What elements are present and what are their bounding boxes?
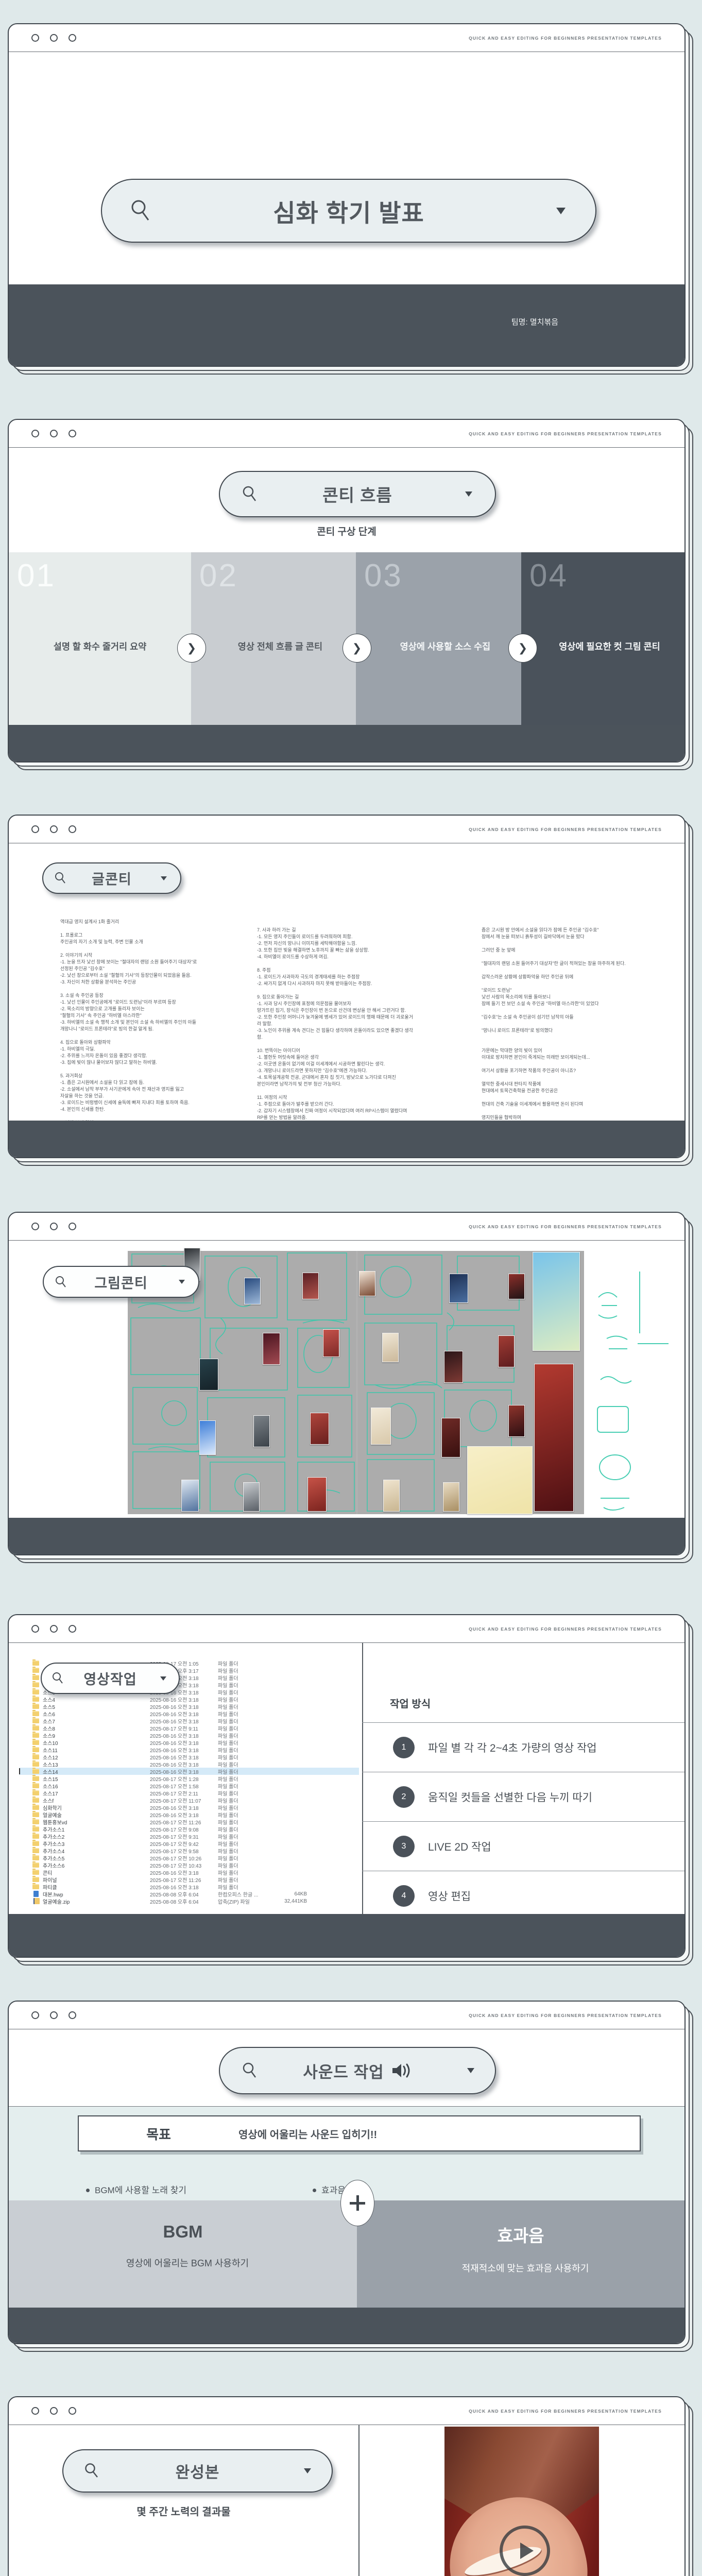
storyboard-thumbnail xyxy=(534,1364,574,1512)
file-type: 파일 폴더 xyxy=(218,1876,279,1884)
window-dots[interactable] xyxy=(31,34,76,42)
window-dot-icon[interactable] xyxy=(31,1625,39,1633)
work-step-number: 1 xyxy=(393,1737,415,1758)
file-row[interactable]: 추가소스52025-08-17 오전 10:26파일 폴더 xyxy=(19,1854,359,1861)
folder-icon xyxy=(32,1733,39,1738)
file-name: 추가소스2 xyxy=(43,1833,150,1840)
storyboard-thumbnail xyxy=(302,1273,319,1299)
file-name: 소스9 xyxy=(43,1732,150,1739)
storyboard-thumbnail xyxy=(508,1405,525,1437)
file-date: 2025-08-16 오전 3:18 xyxy=(150,1869,218,1876)
file-type: 파일 폴더 xyxy=(218,1825,279,1833)
file-date: 2025-08-16 오전 3:18 xyxy=(150,1717,218,1725)
folder-icon xyxy=(32,1790,39,1795)
storyline-line xyxy=(257,1041,413,1047)
title-search-bar[interactable]: 그림콘티 xyxy=(43,1266,199,1298)
file-type: 압축(ZIP) 파일 xyxy=(218,1897,279,1905)
window-dot-icon[interactable] xyxy=(69,1625,76,1633)
work-method-heading: 작업 방식 xyxy=(390,1696,431,1710)
window-dot-icon[interactable] xyxy=(50,2011,58,2019)
storyboard-thumbnail xyxy=(199,1420,216,1455)
window-dot-icon[interactable] xyxy=(50,825,58,833)
file-name: 소스5 xyxy=(43,1703,150,1710)
file-date: 2025-08-08 오후 6:04 xyxy=(150,1890,218,1898)
file-row[interactable]: 웹툰홍보vd2025-08-17 오전 11:26파일 폴더 xyxy=(19,1818,359,1825)
window-dots[interactable] xyxy=(31,2011,76,2019)
folder-icon xyxy=(32,1711,39,1716)
storyline-line: 잠에 들기 전 보던 소설 속 주인공 "하비엘 아스라한"이 있었다 xyxy=(482,1001,626,1007)
slide-5-title-text: 영상작업 xyxy=(83,1668,136,1688)
file-type: 파일 폴더 xyxy=(218,1696,279,1703)
storyline-line: -4. 본인의 신세를 한탄. xyxy=(60,1106,197,1113)
storyline-line: 1. 프롤로그 xyxy=(60,932,197,939)
title-search-bar[interactable]: 심화 학기 발표 xyxy=(101,179,596,243)
template-header-text: QUICK AND EASY EDITING FOR BEGINNERS PRE… xyxy=(469,827,662,832)
title-search-bar[interactable]: 사운드 작업 xyxy=(219,2047,496,2094)
work-step-number: 3 xyxy=(393,1836,415,1857)
window-dot-icon[interactable] xyxy=(31,825,39,833)
chevron-right-icon: ❯ xyxy=(343,634,371,663)
search-icon xyxy=(129,198,151,223)
slide-1-title-text: 심화 학기 발표 xyxy=(273,193,424,229)
file-row[interactable]: 소스92025-08-16 오전 3:18파일 폴더 xyxy=(19,1732,359,1739)
file-date: 2025-08-16 오전 3:18 xyxy=(150,1753,218,1761)
storyboard-thumbnail xyxy=(263,1333,280,1365)
storyline-line: "절대자의 랜덤 소원 들어주기 대상자"란 글이 적혀있는 창을 마주하게 된… xyxy=(482,960,626,967)
sfx-column: 효과음 적재적소에 맞는 효과음 사용하기 xyxy=(357,2200,684,2308)
file-type: 파일 폴더 xyxy=(218,1717,279,1725)
storyline-line xyxy=(257,987,413,994)
file-type: 파일 폴더 xyxy=(218,1869,279,1876)
window-dot-icon[interactable] xyxy=(50,34,58,42)
storyboard-thumbnail xyxy=(244,1278,261,1304)
storyline-line: -2. 갑자기 시스템창에서 진짜 여정이 시작되었다며 여러 RP시스템이 열… xyxy=(257,1108,413,1114)
goal-text: 영상에 어울리는 사운드 입히기!! xyxy=(238,2126,377,2141)
storyline-line: -2. 소설에서 남작 부부가 사기꾼에게 속아 전 재산과 영지를 잃고 xyxy=(60,1086,197,1093)
storyboard-thumbnail xyxy=(371,1408,391,1445)
file-name: 소스6 xyxy=(43,1710,150,1718)
file-type: 파일 폴더 xyxy=(218,1782,279,1790)
window-dot-icon[interactable] xyxy=(31,34,39,42)
storyline-line: -3. 또한 집안 빚을 해결하면 노후까지 꿀 빠는 삶을 상상함. xyxy=(257,947,413,954)
window-dots[interactable] xyxy=(31,825,76,833)
browser-window-7: QUICK AND EASY EDITING FOR BEGINNERS PRE… xyxy=(8,2396,686,2576)
search-icon xyxy=(242,485,257,503)
file-name: 얼굴예술.zip xyxy=(43,1897,150,1905)
folder-icon xyxy=(32,1704,39,1709)
chevron-down-icon[interactable] xyxy=(467,2068,474,2073)
work-step-text: 움직일 컷들을 선별한 다음 누끼 따기 xyxy=(428,1789,592,1805)
file-name: 소스10 xyxy=(43,1739,150,1747)
folder-icon xyxy=(32,1689,39,1694)
browser-window-6: QUICK AND EASY EDITING FOR BEGINNERS PRE… xyxy=(8,2001,686,2344)
storyline-line: 현대에서 토목건축학을 전공한 주인공은 xyxy=(482,1088,626,1094)
title-search-bar[interactable]: 글콘티 xyxy=(42,862,181,894)
file-date: 2025-08-17 오전 11:07 xyxy=(150,1797,218,1804)
storyline-col3: 좁은 고시원 방 안에서 소설을 읽다가 잠에 든 주인공 "김수호"잠에서 깨… xyxy=(482,927,626,1141)
file-row[interactable]: 소스142025-08-16 오전 3:18파일 폴더 xyxy=(19,1768,359,1775)
storyline-line: -1. 사과 당시 주인장에 표정에 의문점을 물어보자 xyxy=(257,1001,413,1007)
window-dot-icon[interactable] xyxy=(50,430,58,437)
storyline-line xyxy=(482,954,626,960)
flow-step-number: 01 xyxy=(9,552,191,594)
file-row[interactable]: 심화학기2025-08-16 오전 3:18파일 폴더 xyxy=(19,1804,359,1811)
folder-icon xyxy=(32,1783,39,1788)
window-dots[interactable] xyxy=(31,2407,76,2415)
file-type: 파일 폴더 xyxy=(218,1760,279,1768)
slide-4-footer xyxy=(9,1518,684,1554)
storyline-line xyxy=(482,1108,626,1114)
file-row[interactable]: 추가소스32025-08-17 오전 9:42파일 폴더 xyxy=(19,1840,359,1847)
file-type: 파일 폴더 xyxy=(218,1883,279,1891)
storyline-line: "로이드 도련님" xyxy=(482,987,626,994)
file-row[interactable]: 추가소스62025-08-17 오전 10:43파일 폴더 xyxy=(19,1861,359,1869)
file-date: 2025-08-16 오전 3:18 xyxy=(150,1768,218,1775)
flow-step-label: 영상 전체 흐름 글 콘티 xyxy=(191,640,356,653)
storyboard-thumbnail xyxy=(382,1333,399,1362)
window-titlebar: QUICK AND EASY EDITING FOR BEGINNERS PRE… xyxy=(9,1213,684,1241)
template-header-text: QUICK AND EASY EDITING FOR BEGINNERS PRE… xyxy=(469,36,662,41)
browser-window-4: QUICK AND EASY EDITING FOR BEGINNERS PRE… xyxy=(8,1212,686,1555)
template-header-text: QUICK AND EASY EDITING FOR BEGINNERS PRE… xyxy=(469,2013,662,2018)
storyboard-thumbnail xyxy=(467,1446,533,1514)
work-step-text: 파일 별 각 각 2~4초 가량의 영상 작업 xyxy=(428,1740,597,1755)
chevron-down-icon[interactable] xyxy=(465,492,472,497)
file-type: 파일 폴더 xyxy=(218,1840,279,1848)
window-dot-icon[interactable] xyxy=(50,1625,58,1633)
file-name: 심화학기 xyxy=(43,1804,150,1811)
file-name: 소스f xyxy=(43,1797,150,1804)
file-row[interactable]: 얼굴예술2025-08-16 오전 3:18파일 폴더 xyxy=(19,1811,359,1818)
file-name: 파이널 xyxy=(43,1876,150,1884)
storyline-line xyxy=(482,1094,626,1101)
storyline-line xyxy=(60,1066,197,1073)
chevron-right-icon: ❯ xyxy=(177,634,206,663)
folder-icon xyxy=(32,1668,39,1673)
folder-icon xyxy=(32,1862,39,1868)
browser-window-5: QUICK AND EASY EDITING FOR BEGINNERS PRE… xyxy=(8,1614,686,1958)
slide-3-title-text: 글콘티 xyxy=(92,868,132,888)
flow-step-04: 04영상에 필요한 컷 그림 콘티 xyxy=(521,552,684,727)
file-date: 2025-08-16 오전 3:18 xyxy=(150,1696,218,1703)
window-dot-icon[interactable] xyxy=(50,2407,58,2415)
file-name: 소스11 xyxy=(43,1746,150,1754)
goal-box: 목표 영상에 어울리는 사운드 입히기!! xyxy=(78,2115,641,2151)
slide-2-flow: QUICK AND EASY EDITING FOR BEGINNERS PRE… xyxy=(8,419,686,762)
file-row[interactable]: 추가소스22025-08-17 오전 9:31파일 폴더 xyxy=(19,1833,359,1840)
folder-icon xyxy=(32,1819,39,1824)
window-dot-icon[interactable] xyxy=(69,430,76,437)
storyline-line: -1. 좁은 고시원에서 소설을 다 읽고 잠에 듬. xyxy=(60,1079,197,1086)
folder-icon xyxy=(32,1870,39,1875)
slide-1-footer: 팀명: 멸치볶음 xyxy=(9,284,684,366)
file-row[interactable]: 소스f2025-08-17 오전 11:07파일 폴더 xyxy=(19,1797,359,1804)
file-row[interactable]: 추가소스42025-08-17 오전 9:58파일 폴더 xyxy=(19,1847,359,1854)
window-dot-icon[interactable] xyxy=(69,2407,76,2415)
storyline-line xyxy=(60,945,197,952)
file-row[interactable]: 추가소스12025-08-17 오전 9:08파일 폴더 xyxy=(19,1825,359,1833)
storyline-line: -4. 토목설계공학 전공, 군대에서 혼자 집 짓기, 밤낮으로 노가다로 다… xyxy=(257,1074,413,1081)
flow-step-label: 설명 할 화수 줄거리 요약 xyxy=(9,640,191,653)
file-row[interactable]: 소스62025-08-16 오전 3:18파일 폴더 xyxy=(19,1710,359,1717)
browser-window-2: QUICK AND EASY EDITING FOR BEGINNERS PRE… xyxy=(8,419,686,762)
file-date: 2025-08-16 오전 3:18 xyxy=(150,1703,218,1710)
storyboard-thumbnail xyxy=(508,1274,525,1299)
browser-window-3: QUICK AND EASY EDITING FOR BEGINNERS PRE… xyxy=(8,815,686,1158)
file-date: 2025-08-17 오전 9:11 xyxy=(150,1724,218,1732)
file-date: 2025-08-16 오전 3:18 xyxy=(150,1804,218,1811)
file-type: 파일 폴더 xyxy=(218,1789,279,1797)
storyboard-thumbnail xyxy=(359,1271,375,1296)
storyline-line: -1. 눈을 뜨자 낯선 창에 보이는 "절대자의 랜덤 소원 들어주기 대상자… xyxy=(60,959,197,965)
file-row[interactable]: 파이널2025-08-17 오전 11:26파일 폴더 xyxy=(19,1876,359,1883)
slide-7-subtitle: 몇 주간 노력의 결과물 xyxy=(9,2503,358,2518)
window-dot-icon[interactable] xyxy=(69,1223,76,1230)
file-type: 파일 폴더 xyxy=(218,1681,279,1689)
window-dot-icon[interactable] xyxy=(69,825,76,833)
storyboard-thumbnail xyxy=(310,1413,329,1445)
file-type: 파일 폴더 xyxy=(218,1768,279,1775)
slide-7-title-text: 완성본 xyxy=(176,2460,220,2482)
storyline-line xyxy=(257,960,413,967)
file-row[interactable]: 소스122025-08-16 오전 3:18파일 폴더 xyxy=(19,1753,359,1760)
slide-4-storyboard: QUICK AND EASY EDITING FOR BEGINNERS PRE… xyxy=(8,1212,686,1555)
hwp-icon xyxy=(33,1891,39,1897)
file-type: 파일 폴더 xyxy=(218,1804,279,1811)
file-type: 파일 폴더 xyxy=(218,1703,279,1710)
folder-icon xyxy=(32,1718,39,1723)
folder-icon xyxy=(32,1805,39,1810)
storyline-line xyxy=(482,940,626,947)
search-icon xyxy=(84,2463,98,2479)
flow-step-label: 영상에 필요한 컷 그림 콘티 xyxy=(521,640,684,653)
storyline-line: -3. 집에 빚이 많냐 물어보자 많다고 말하는 하비엘. xyxy=(60,1059,197,1066)
title-search-bar[interactable]: 콘티 흐름 xyxy=(219,471,496,517)
window-dot-icon[interactable] xyxy=(31,1223,39,1230)
browser-window-1: QUICK AND EASY EDITING FOR BEGINNERS PRE… xyxy=(8,23,686,367)
storyboard-thumbnail xyxy=(243,1482,260,1512)
window-dot-icon[interactable] xyxy=(31,2011,39,2019)
search-icon xyxy=(242,2062,257,2079)
file-type: 파일 폴더 xyxy=(218,1811,279,1819)
file-row[interactable]: 소스72025-08-16 오전 3:18파일 폴더 xyxy=(19,1717,359,1724)
final-video-thumbnail[interactable]: 날름... xyxy=(444,2427,599,2576)
file-date: 2025-08-16 오전 3:18 xyxy=(150,1739,218,1747)
folder-icon xyxy=(32,1841,39,1846)
flow-step-03: 03영상에 사용할 소스 수집 xyxy=(356,552,521,727)
storyline-line xyxy=(482,1061,626,1067)
slide-5-video-work: QUICK AND EASY EDITING FOR BEGINNERS PRE… xyxy=(8,1614,686,1958)
storyline-line: 5. 과거회상 xyxy=(60,1073,197,1079)
search-icon xyxy=(55,872,66,885)
flow-step-02: 02영상 전체 흐름 글 콘티 xyxy=(191,552,356,727)
slide-6-footer xyxy=(9,2308,684,2343)
panel-divider xyxy=(358,2425,359,2576)
storyline-line: 역대급 영지 설계사 1화 줄거리 xyxy=(60,919,197,925)
storyline-line xyxy=(60,925,197,932)
storyline-line: -3. 자신이 처한 상황을 분석하는 주인공 xyxy=(60,979,197,986)
storyline-line xyxy=(257,1088,413,1094)
title-search-bar[interactable]: 영상작업 xyxy=(41,1663,180,1694)
storyline-line: 본인이라면 남작가의 빚 전부 청산 가능하다. xyxy=(257,1081,413,1088)
file-type: 파일 폴더 xyxy=(218,1746,279,1754)
storyline-line xyxy=(482,1041,626,1047)
plus-icon[interactable] xyxy=(340,2180,374,2226)
file-row[interactable]: 소스102025-08-16 오전 3:18파일 폴더 xyxy=(19,1739,359,1746)
file-name: 소스16 xyxy=(43,1782,150,1790)
storyline-line: 여기서 상황을 포기하면 작품의 주인공이 아니죠? xyxy=(482,1067,626,1074)
storyline-line xyxy=(60,1113,197,1120)
file-type: 파일 폴더 xyxy=(218,1854,279,1862)
chevron-down-icon[interactable] xyxy=(161,876,167,880)
file-name: 소스14 xyxy=(43,1768,150,1775)
storyboard-thumbnail xyxy=(253,1415,270,1447)
folder-icon xyxy=(32,1675,39,1680)
bgm-column: BGM 영상에 어울리는 BGM 사용하기 xyxy=(9,2200,357,2308)
file-row[interactable]: 파티클2025-08-16 오전 3:18파일 폴더 xyxy=(19,1883,359,1890)
file-size: 32,441KB xyxy=(279,1899,307,1904)
file-type: 파일 폴더 xyxy=(218,1739,279,1747)
file-row[interactable]: 소스82025-08-17 오전 9:11파일 폴더 xyxy=(19,1724,359,1732)
file-row[interactable]: 대본.hwp2025-08-08 오후 6:04한컴오피스 한글 ...64KB xyxy=(19,1890,359,1897)
file-row[interactable]: 소스112025-08-16 오전 3:18파일 폴더 xyxy=(19,1746,359,1753)
slide-6-sound-work: QUICK AND EASY EDITING FOR BEGINNERS PRE… xyxy=(8,2001,686,2344)
file-row[interactable]: 소스152025-08-17 오전 1:28파일 폴더 xyxy=(19,1775,359,1782)
storyboard-thumbnail xyxy=(323,1329,339,1357)
folder-icon xyxy=(32,1754,39,1759)
file-row[interactable]: 소스172025-08-17 오전 2:11파일 폴더 xyxy=(19,1789,359,1797)
storyline-line: -2. 목소리의 방향으로 고개를 돌리자 보이는 xyxy=(60,1006,197,1012)
storyline-line: 8. 주점 xyxy=(257,967,413,974)
window-titlebar: QUICK AND EASY EDITING FOR BEGINNERS PRE… xyxy=(9,420,684,448)
search-icon xyxy=(52,1672,63,1685)
file-name: 추가소스6 xyxy=(43,1861,150,1869)
storyboard-thumbnail xyxy=(443,1482,459,1512)
window-dot-icon[interactable] xyxy=(31,430,39,437)
storyline-line: "망나니 로이드 프론테라"로 빙의했다 xyxy=(482,1027,626,1034)
chevron-right-icon: ❯ xyxy=(508,634,537,663)
storyline-line: 4. 집으로 돌아와 상황파악 xyxy=(60,1039,197,1046)
speaker-icon xyxy=(391,2062,412,2079)
storyline-line: 낯선 사람의 목소리에 뒤를 돌아보니 xyxy=(482,994,626,1001)
file-date: 2025-08-17 오전 9:08 xyxy=(150,1825,218,1833)
title-search-bar[interactable]: 완성본 xyxy=(62,2449,333,2493)
chevron-down-icon[interactable] xyxy=(160,1676,166,1681)
folder-icon xyxy=(32,1884,39,1889)
file-date: 2025-08-16 오전 3:18 xyxy=(150,1883,218,1891)
file-row[interactable]: 소스132025-08-16 오전 3:18파일 폴더 xyxy=(19,1760,359,1768)
storyline-line: -2. 먼저 자신의 망나니 이미지를 세탁해야함을 느낌. xyxy=(257,940,413,947)
chevron-down-icon[interactable] xyxy=(304,2468,311,2473)
storyline-line: -3. 하비엘의 소설 속 행적 소개 및 본인이 소설 속 하비엘의 주인의 … xyxy=(60,1019,197,1026)
template-header-text: QUICK AND EASY EDITING FOR BEGINNERS PRE… xyxy=(469,1224,662,1229)
folder-icon xyxy=(32,1834,39,1839)
slide-2-subtitle: 콘티 구상 단계 xyxy=(9,524,684,538)
window-dots[interactable] xyxy=(31,1223,76,1230)
work-step-number: 2 xyxy=(393,1786,415,1808)
slide-1-content: 심화 학기 발표 팀명: 멸치볶음 xyxy=(9,52,684,366)
file-date: 2025-08-16 오전 3:18 xyxy=(150,1746,218,1754)
storyline-line: 자살을 하는 것을 언급. xyxy=(60,1093,197,1099)
storyline-line: 라 말함. xyxy=(257,1021,413,1027)
slide-2-footer xyxy=(9,725,684,761)
storyline-line: 가문에는 막대한 양의 빚이 있어 xyxy=(482,1047,626,1054)
file-row[interactable]: 콘티2025-08-16 오전 3:18파일 폴더 xyxy=(19,1869,359,1876)
file-date: 2025-08-17 오전 10:43 xyxy=(150,1861,218,1869)
folder-icon xyxy=(32,1798,39,1803)
file-name: 파티클 xyxy=(43,1883,150,1891)
margin-handwriting xyxy=(588,1261,678,1529)
file-type: 파일 폴더 xyxy=(218,1797,279,1804)
flow-columns: 01설명 할 화수 줄거리 요약02영상 전체 흐름 글 콘티03영상에 사용할… xyxy=(9,552,684,727)
storyboard-thumbnail xyxy=(498,1335,515,1367)
file-date: 2025-08-16 오전 3:18 xyxy=(150,1811,218,1819)
slide-3-content: 글콘티 역대급 영지 설계사 1화 줄거리 1. 프롤로그주인공의 자기 소개 … xyxy=(9,843,684,1157)
file-date: 2025-08-17 오전 11:26 xyxy=(150,1818,218,1826)
file-type: 파일 폴더 xyxy=(218,1753,279,1761)
window-dot-icon[interactable] xyxy=(31,2407,39,2415)
storyline-col2: 7. 사과 하러 가는 길 -1. 모든 영지 주인들이 로이드를 두려워하며 … xyxy=(257,927,413,1121)
storyline-line: 선정된 주인공 "김수호" xyxy=(60,965,197,972)
file-row[interactable]: 소스52025-08-16 오전 3:18파일 폴더 xyxy=(19,1703,359,1710)
file-date: 2025-08-16 오전 3:18 xyxy=(150,1732,218,1739)
window-titlebar: QUICK AND EASY EDITING FOR BEGINNERS PRE… xyxy=(9,1615,684,1643)
storyline-line: -2. 이곳엔 온돌이 없기에 이걸 이세계에서 시공하면 팔린다는 생각. xyxy=(257,1061,413,1067)
window-dot-icon[interactable] xyxy=(50,1223,58,1230)
window-dot-icon[interactable] xyxy=(69,2011,76,2019)
storyline-line xyxy=(482,1021,626,1027)
storyline-line: 7. 사과 하러 가는 길 xyxy=(257,927,413,934)
file-type: 한컴오피스 한글 ... xyxy=(218,1890,279,1898)
slide-7-final-result: QUICK AND EASY EDITING FOR BEGINNERS PRE… xyxy=(8,2396,686,2576)
file-row[interactable]: 소스42025-08-16 오전 3:18파일 폴더 xyxy=(19,1696,359,1703)
slide-4-title-text: 그림콘티 xyxy=(94,1272,147,1292)
file-type: 파일 폴더 xyxy=(218,1674,279,1682)
storyline-line: 현대의 건축 기술을 이세계에서 활용하면 돈이 된다며 xyxy=(482,1101,626,1108)
file-type: 파일 폴더 xyxy=(218,1667,279,1674)
folder-icon xyxy=(32,1697,39,1702)
file-size: 64KB xyxy=(279,1891,307,1897)
storyboard-thumbnail xyxy=(441,1418,460,1458)
window-dots[interactable] xyxy=(31,430,76,437)
storyline-line: -1. 불현듯 머릿속에 들어온 생각 xyxy=(257,1054,413,1061)
work-step-text: LIVE 2D 작업 xyxy=(428,1839,491,1854)
folder-icon xyxy=(32,1877,39,1882)
file-date: 2025-08-16 오전 3:18 xyxy=(150,1760,218,1768)
file-row[interactable]: 소스162025-08-17 오전 1:58파일 폴더 xyxy=(19,1782,359,1789)
storyline-line: -2. 낯선 창으로부터 소설 "철혈의 기사"의 등장인물이 되었음을 들음. xyxy=(60,972,197,979)
storyline-line: -1. 모든 영지 주인들이 로이드를 두려워하며 피함. xyxy=(257,934,413,940)
folder-icon xyxy=(32,1660,39,1666)
storyboard-thumbnail xyxy=(449,1274,468,1303)
file-name: 추가소스4 xyxy=(43,1847,150,1855)
file-name: 소스8 xyxy=(43,1724,150,1732)
storyline-col1: 역대급 영지 설계사 1화 줄거리 1. 프롤로그주인공의 자기 소개 및 능력… xyxy=(60,919,197,1146)
play-button-icon[interactable] xyxy=(500,2526,550,2576)
storyline-line: -2. 싸가지 없게 다시 사과하자 마지 못해 받아들이는 주점장. xyxy=(257,980,413,987)
flow-step-01: 01설명 할 화수 줄거리 요약 xyxy=(9,552,191,727)
window-dots[interactable] xyxy=(31,1625,76,1633)
chevron-down-icon[interactable] xyxy=(179,1280,185,1284)
work-step-text: 영상 편집 xyxy=(428,1888,471,1904)
window-dot-icon[interactable] xyxy=(69,34,76,42)
storyline-line: -2. 또한 주인장 어머니가 늦겨울에 병세가 있어 로이드의 행패 때문에 … xyxy=(257,1014,413,1021)
file-row[interactable]: 얼굴예술.zip2025-08-08 오후 6:04압축(ZIP) 파일32,4… xyxy=(19,1897,359,1905)
chevron-down-icon[interactable] xyxy=(556,208,566,214)
folder-icon xyxy=(32,1776,39,1781)
file-date: 2025-08-17 오전 9:42 xyxy=(150,1840,218,1848)
slide-2-title-text: 콘티 흐름 xyxy=(322,482,392,506)
